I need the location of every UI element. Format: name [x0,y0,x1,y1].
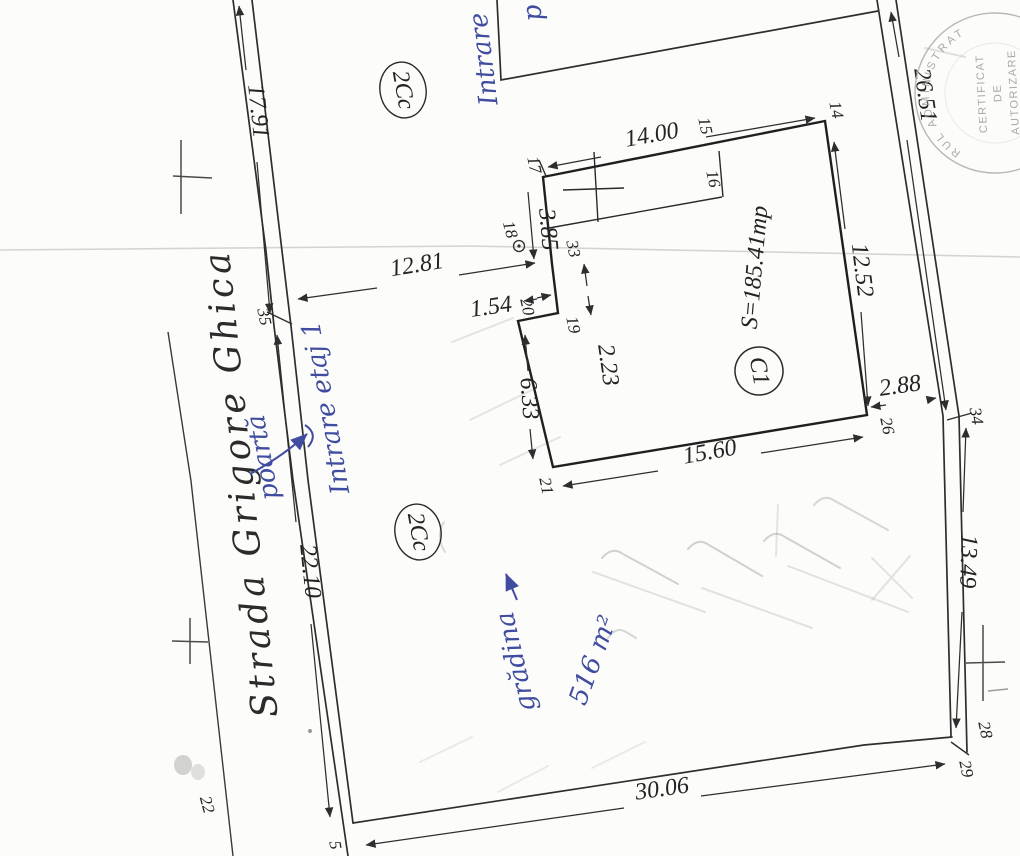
dim-notch-width: 1.54 [468,291,513,323]
stamp-line-2: DE [992,83,1005,102]
building-code-label: C1 [731,343,787,399]
point-label-28: 28 [974,720,996,741]
building-code-text: C1 [744,355,774,387]
pencil-stroke [420,737,472,762]
point-label-15: 15 [694,116,716,137]
dim-line-building-west-lower [530,429,533,459]
dim-line-east-lower [963,428,966,512]
pencil-stroke [593,572,705,612]
dim-west-lower: 22.10 [294,543,326,599]
handwriting-top-note-2: p [517,3,549,24]
zone-code-text: 2Cc [402,511,434,554]
point-number-labels: 35 22 5 21 26 34 28 29 33 19 20 18 17 16… [196,100,997,851]
dimension-labels: 17.91 22.10 26.51 13.49 30.06 12.81 2.88… [242,66,982,805]
pencil-stroke [776,505,778,556]
dim-notch-height: 2.23 [592,342,624,387]
dim-west-upper: 17.91 [242,83,274,139]
dim-building-south: 15.60 [681,435,739,470]
dim-line-building-west-upper [528,192,534,259]
survey-cross-icon [173,140,212,214]
dim-street-to-building: 12.81 [388,248,445,282]
point-label-35: 35 [253,306,275,328]
survey-cross-tick [988,689,1008,691]
parcel-boundaries [168,0,967,856]
point-label-22: 22 [196,794,219,816]
dim-line-building-south [563,471,658,486]
dim-line-east-upper [907,140,946,410]
dim-line-building-to-east [927,398,936,400]
pencil-blob [174,755,192,775]
stamp-line-3: AUTORIZARE [1006,49,1020,135]
dim-building-west-upper: 3.85 [533,206,563,251]
pencil-stroke [592,742,645,768]
dim-line-south [701,764,945,796]
dim-line-east-lower [956,612,962,728]
garden-arrow-icon [506,574,517,600]
dim-line-street-to-building [459,263,535,275]
stamp-line-1: CERTIFICAT [974,54,990,133]
ink-dot [308,729,312,733]
dim-building-east: 12.52 [846,242,878,299]
zone-label-south: 2Cc [390,500,445,563]
pencil-stroke [788,566,908,612]
dim-east-lower: 13.49 [954,534,982,589]
handwriting-garden-note: grădina [490,609,542,715]
pencil-stroke [702,588,812,628]
dim-line-east-upper [891,12,899,57]
scanned-cadastral-plan: 17.91 22.10 26.51 13.49 30.06 12.81 2.88… [0,0,1020,856]
handwritten-notes: Intrare p poartă Intrare etaj 1 grădina … [241,3,624,715]
dim-line-south [366,808,624,845]
dim-line-west-upper [257,162,270,313]
point-label-19: 19 [562,315,584,336]
point-label-26: 26 [876,416,898,437]
dim-line-west-lower [311,624,330,817]
neighbor-building-wall-line [497,0,878,80]
point-label-17: 17 [523,155,545,177]
point-label-16: 16 [702,169,724,190]
dim-line-notch-height [588,296,591,315]
pencil-x-mark [872,556,912,600]
building-interior-line [549,197,722,228]
dim-line-west-upper [239,6,246,70]
dim-building-west-lower: 6.33 [515,377,544,421]
dim-building-north: 14.00 [623,118,681,153]
point-label-14: 14 [825,100,847,121]
dim-south: 30.06 [632,772,690,805]
pencil-hook-mark [814,498,888,530]
dim-building-to-east: 2.88 [877,370,922,402]
pencil-stroke [452,318,513,342]
pencil-hook-mark [688,542,762,576]
monument-point-18-dot [517,244,520,247]
site-plan-canvas: 17.91 22.10 26.51 13.49 30.06 12.81 2.88… [0,0,1020,856]
point-label-18: 18 [499,219,522,241]
point-label-29: 29 [955,759,977,780]
pencil-stroke [498,766,548,792]
dim-line-building-south [761,437,863,453]
handwriting-entrance-note: Intrare etaj 1 [296,318,356,497]
point-label-33: 33 [562,238,584,260]
point-label-21: 21 [535,476,557,497]
zone-code-text: 2Cc [387,69,419,112]
authorization-stamp: RUL ADMINISTRAT CERTIFICAT DE AUTORIZARE… [911,9,1020,177]
building-outline [518,121,867,467]
point-label-20: 20 [516,297,538,318]
dim-line-street-to-building [298,288,377,299]
point-label-34: 34 [965,405,987,427]
point-label-5: 5 [325,839,345,851]
dim-line-building-north [548,157,601,167]
building-c1 [518,121,867,467]
pencil-blob [191,764,205,780]
zone-label-north: 2Cc [375,58,430,121]
dim-line-notch-height [584,264,587,286]
dim-line-notch-width [537,295,551,298]
survey-cross-icon [172,618,208,664]
handwriting-garden-area: 516 m² [563,611,623,709]
building-area-text: S=185.41mp [737,205,774,330]
dim-line-building-to-east [871,405,886,407]
dimension-lines [239,6,972,845]
